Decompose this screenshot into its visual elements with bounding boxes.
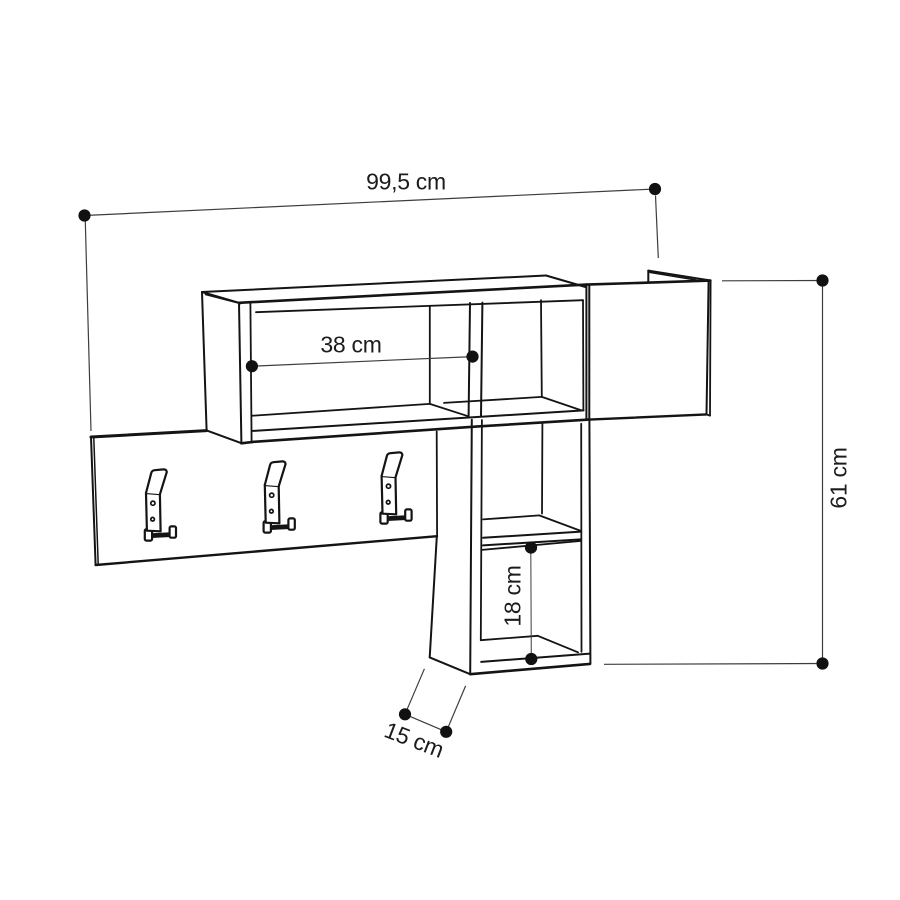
svg-text:38 cm: 38 cm [320,332,381,358]
svg-text:61 cm: 61 cm [826,447,852,508]
svg-text:99,5 cm: 99,5 cm [366,169,446,195]
svg-text:18 cm: 18 cm [500,565,526,626]
